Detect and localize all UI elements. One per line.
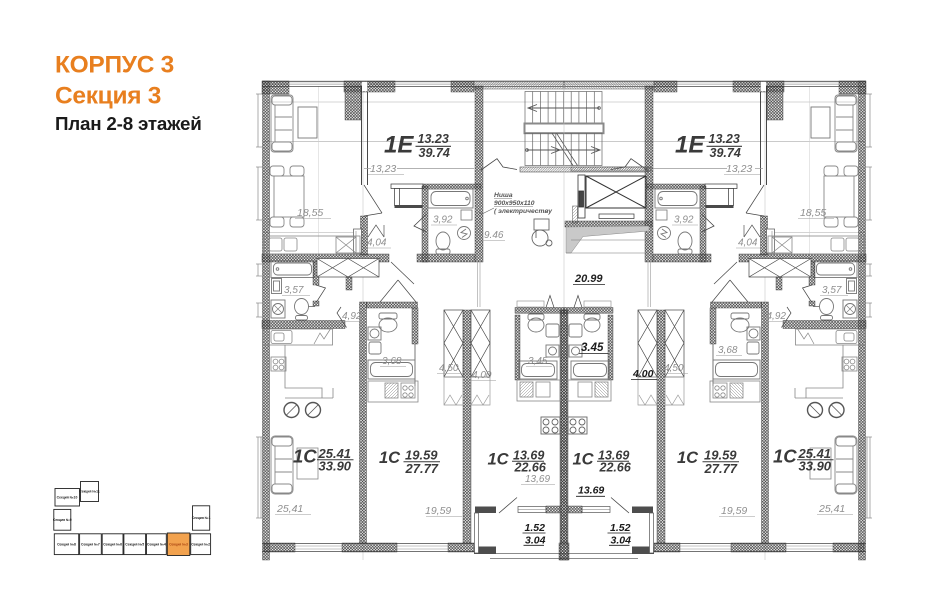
svg-text:3,57: 3,57 [822,285,842,296]
svg-text:3,57: 3,57 [284,285,304,296]
svg-text:20.99: 20.99 [574,273,603,285]
svg-text:Секция №8: Секция №8 [57,543,76,547]
svg-text:( электричеству: ( электричеству [494,208,552,215]
svg-text:1С: 1С [573,451,595,469]
svg-text:39.74: 39.74 [419,146,450,160]
svg-text:Секция №1: Секция №1 [192,516,211,520]
svg-text:13,23: 13,23 [726,163,752,175]
svg-text:19,59: 19,59 [721,505,747,517]
svg-text:1С: 1С [677,449,699,467]
svg-text:Секция №5: Секция №5 [125,543,144,547]
svg-text:Секция №7: Секция №7 [81,543,100,547]
svg-text:Секция №4: Секция №4 [147,543,166,547]
svg-text:33.90: 33.90 [319,459,352,474]
svg-text:25,41: 25,41 [818,503,845,515]
svg-text:13,69: 13,69 [525,474,550,485]
svg-text:13.23: 13.23 [418,132,449,146]
svg-text:4,92: 4,92 [342,311,362,322]
svg-text:13,23: 13,23 [370,163,396,175]
svg-text:4,50: 4,50 [439,363,459,374]
svg-text:3,68: 3,68 [382,356,402,367]
svg-text:1.52: 1.52 [610,522,631,534]
svg-text:3,45: 3,45 [528,356,548,367]
svg-text:4,00: 4,00 [472,370,492,381]
svg-text:1С: 1С [379,449,401,467]
svg-text:19,59: 19,59 [425,505,451,517]
svg-text:4,04: 4,04 [738,238,758,249]
svg-text:3.04: 3.04 [611,535,632,547]
svg-text:КОРПУС 3: КОРПУС 3 [55,52,174,79]
svg-text:13.69: 13.69 [578,485,604,497]
svg-text:3,92: 3,92 [674,215,694,226]
svg-text:Секция №6: Секция №6 [103,543,122,547]
svg-text:Секция 3: Секция 3 [55,83,161,110]
svg-text:4.00: 4.00 [632,368,654,380]
svg-text:4,92: 4,92 [767,311,787,322]
svg-text:1Е: 1Е [675,132,705,159]
svg-text:Ниша: Ниша [494,192,513,199]
svg-text:3.45: 3.45 [581,342,604,354]
svg-text:1С: 1С [773,446,797,467]
svg-text:9.46: 9.46 [484,230,504,241]
svg-text:3,68: 3,68 [718,345,738,356]
svg-text:План 2-8 этажей: План 2-8 этажей [55,113,202,134]
svg-text:25,41: 25,41 [276,503,303,515]
svg-text:Секция №3: Секция №3 [169,543,188,547]
svg-text:3.04: 3.04 [525,535,546,547]
svg-text:22.66: 22.66 [599,461,632,475]
svg-text:4,50: 4,50 [664,363,684,374]
svg-text:13.23: 13.23 [709,132,740,146]
svg-text:Секция №9: Секция №9 [53,518,72,522]
svg-text:Секция №2: Секция №2 [191,543,210,547]
svg-text:1.52: 1.52 [525,522,546,534]
svg-text:18,55: 18,55 [800,207,826,219]
svg-text:4,04: 4,04 [367,238,387,249]
svg-text:33.90: 33.90 [799,459,832,474]
svg-text:27.77: 27.77 [704,461,738,476]
svg-text:39.74: 39.74 [710,146,741,160]
svg-text:27.77: 27.77 [405,461,439,476]
svg-text:900х950х110: 900х950х110 [494,200,535,207]
svg-text:3,92: 3,92 [433,215,453,226]
svg-text:18,55: 18,55 [297,207,323,219]
svg-text:Секция №10: Секция №10 [57,496,78,500]
svg-text:Секция №11: Секция №11 [79,490,100,494]
svg-text:22.66: 22.66 [514,461,547,475]
svg-text:1С: 1С [488,451,510,469]
svg-text:1Е: 1Е [384,132,414,159]
svg-text:1С: 1С [293,446,317,467]
